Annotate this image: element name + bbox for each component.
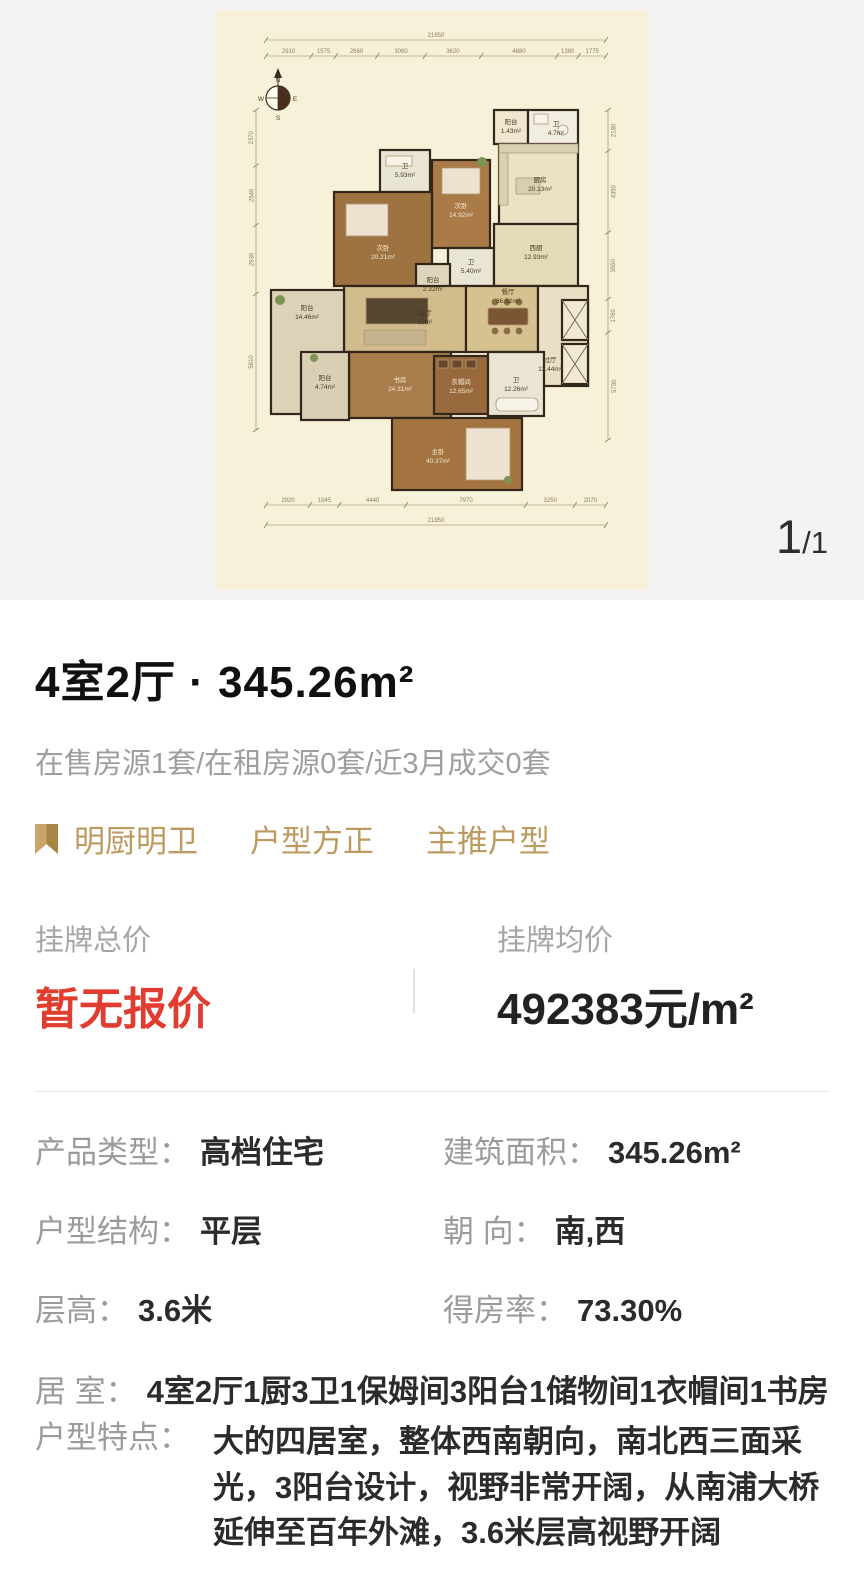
detail-row: 产品类型：高档住宅 建筑面积：345.26m² xyxy=(35,1134,829,1173)
dim-bottom-seg: 7970 xyxy=(459,498,473,504)
page-indicator-total: /1 xyxy=(802,525,828,560)
total-price-block: 挂牌总价 暂无报价 xyxy=(35,917,497,1037)
floorplan-drawing: 21850 2910 1575 2660 3060 3620 4880 1380… xyxy=(216,10,648,590)
detail-label: 层高： xyxy=(35,1293,128,1328)
room-area: 4.74m² xyxy=(315,384,336,391)
dim-top-total: 21850 xyxy=(428,33,445,39)
room-label: 客厅 xyxy=(419,308,433,317)
room-area: 24.31m² xyxy=(388,386,413,393)
room-label: 阳台 xyxy=(319,373,332,382)
avg-price-label: 挂牌均价 xyxy=(497,917,829,959)
dim-bottom-seg: 2070 xyxy=(584,498,598,504)
tag-square-layout: 户型方正 xyxy=(250,816,374,861)
dim-top-seg: 2910 xyxy=(282,49,296,55)
room-area: 1.43m² xyxy=(501,128,522,135)
price-section: 挂牌总价 暂无报价 挂牌均价 492383元/m² xyxy=(0,917,864,1037)
room-label: 主卧 xyxy=(432,447,446,456)
room-area: 40.37m² xyxy=(426,458,451,465)
detail-built-area: 建筑面积：345.26m² xyxy=(443,1134,829,1173)
detail-label: 建筑面积： xyxy=(443,1135,598,1170)
detail-value: 大的四居室，整体西南朝向，南北西三面采光，3阳台设计，视野非常开阔，从南浦大桥延… xyxy=(213,1419,829,1556)
dim-right-seg: 2180 xyxy=(612,123,618,137)
room-area: 2.32m² xyxy=(423,286,444,293)
room-label: 阳台 xyxy=(427,275,440,284)
tag-featured-layout: 主推户型 xyxy=(426,816,550,861)
compass-w: W xyxy=(258,96,265,103)
page-title: 4室2厅 · 345.26m² xyxy=(35,646,829,710)
room-area: 36.52m² xyxy=(496,298,521,305)
page-indicator: 1/1 xyxy=(776,513,828,560)
dim-bottom-seg: 4440 xyxy=(366,498,380,504)
dim-top-seg: 1575 xyxy=(317,49,331,55)
room-area: 55m² xyxy=(418,319,434,326)
room-label: 卫 xyxy=(402,162,409,170)
compass-e: E xyxy=(293,96,298,103)
dim-bottom-seg: 3250 xyxy=(544,498,558,504)
listing-stats: 在售房源1套/在租房源0套/近3月成交0套 xyxy=(35,740,829,782)
bookmark-icon xyxy=(35,824,58,854)
dim-top-seg: 2660 xyxy=(350,49,364,55)
price-divider xyxy=(413,969,415,1013)
detail-value: 73.30% xyxy=(577,1293,682,1328)
details-section: 产品类型：高档住宅 建筑面积：345.26m² 户型结构：平层 朝 向：南,西 … xyxy=(0,1092,864,1556)
total-price-value: 暂无报价 xyxy=(35,973,497,1037)
room-label: 书房 xyxy=(394,375,407,384)
room-label: 卫 xyxy=(553,120,560,128)
room-area: 20.21m² xyxy=(371,254,396,261)
detail-rooms: 居 室：4室2厅1厨3卫1保姆间3阳台1储物间1衣帽间1书房 xyxy=(35,1370,829,1415)
room-label: 卫 xyxy=(513,376,520,384)
avg-price-block: 挂牌均价 492383元/m² xyxy=(497,917,829,1037)
detail-value: 345.26m² xyxy=(608,1135,741,1170)
dim-left-seg: 2930 xyxy=(250,252,256,266)
page-indicator-current: 1 xyxy=(776,510,802,563)
room-label: 次卧 xyxy=(455,201,469,210)
dim-left-seg: 2540 xyxy=(250,188,256,202)
detail-label: 居 室： xyxy=(35,1374,137,1409)
detail-features: 户型特点：大的四居室，整体西南朝向，南北西三面采光，3阳台设计，视野非常开阔，从… xyxy=(35,1419,829,1556)
room-label: 西厨 xyxy=(530,244,544,252)
room-label: 阳台 xyxy=(505,117,518,126)
detail-row: 户型结构：平层 朝 向：南,西 xyxy=(35,1213,829,1252)
dim-bottom-total: 21850 xyxy=(428,518,445,524)
room-label: 过厅 xyxy=(544,355,558,364)
avg-price-value: 492383元/m² xyxy=(497,973,829,1037)
room-area: 12.65m² xyxy=(449,388,474,395)
detail-orientation: 朝 向：南,西 xyxy=(443,1213,829,1252)
detail-label: 户型结构： xyxy=(35,1214,190,1249)
room-area: 14.46m² xyxy=(295,314,320,321)
room-area: 14.92m² xyxy=(449,212,474,219)
room-label: 衣帽间 xyxy=(451,377,471,386)
dim-top-seg: 4880 xyxy=(512,49,526,55)
dim-bottom-seg: 2920 xyxy=(281,498,295,504)
summary-section: 4室2厅 · 345.26m² 在售房源1套/在租房源0套/近3月成交0套 明厨… xyxy=(0,600,864,861)
room-label: 餐厅 xyxy=(502,287,516,296)
detail-label: 户型特点： xyxy=(35,1419,203,1556)
room-area: 4.7m² xyxy=(548,130,565,137)
room-area: 13.44m² xyxy=(538,366,563,373)
room-area: 12.93m² xyxy=(524,254,549,261)
listing-page: 21850 2910 1575 2660 3060 3620 4880 1380… xyxy=(0,0,864,1569)
room-label: 卫 xyxy=(468,258,475,266)
room-area: 5.40m² xyxy=(461,268,482,275)
dim-left-seg: 5810 xyxy=(249,355,255,369)
dim-left-seg: 2370 xyxy=(249,130,255,144)
floorplan-image[interactable]: 21850 2910 1575 2660 3060 3620 4880 1380… xyxy=(216,10,648,590)
tag-bright-kitchen-bath: 明厨明卫 xyxy=(74,816,198,861)
room-area: 12.26m² xyxy=(504,386,529,393)
dim-top-seg: 3620 xyxy=(446,49,460,55)
dim-right-seg: 4350 xyxy=(611,184,617,198)
detail-row: 层高：3.6米 得房率：73.30% xyxy=(35,1292,829,1331)
dim-top-seg: 3060 xyxy=(394,49,408,55)
compass-n: N xyxy=(276,77,281,84)
detail-value: 南,西 xyxy=(555,1214,626,1249)
detail-value: 平层 xyxy=(200,1214,262,1249)
dim-right-seg: 5730 xyxy=(612,379,618,393)
total-price-label: 挂牌总价 xyxy=(35,917,497,959)
room-area: 20.13m² xyxy=(528,186,553,193)
detail-label: 得房率： xyxy=(443,1293,567,1328)
detail-structure: 户型结构：平层 xyxy=(35,1213,443,1252)
compass-s: S xyxy=(276,115,281,122)
tag-row: 明厨明卫 户型方正 主推户型 xyxy=(35,816,829,861)
detail-product-type: 产品类型：高档住宅 xyxy=(35,1134,443,1173)
dim-top-seg: 1775 xyxy=(586,49,600,55)
room-label: 阳台 xyxy=(301,303,314,312)
detail-value: 4室2厅1厨3卫1保姆间3阳台1储物间1衣帽间1书房 xyxy=(147,1374,829,1409)
dim-right-seg: 3550 xyxy=(611,258,617,272)
detail-efficiency: 得房率：73.30% xyxy=(443,1292,829,1331)
dim-top-seg: 1380 xyxy=(561,49,575,55)
detail-ceiling-height: 层高：3.6米 xyxy=(35,1292,443,1331)
detail-value: 高档住宅 xyxy=(200,1135,324,1170)
room-label: 厨房 xyxy=(534,175,547,184)
dim-bottom-seg: 1945 xyxy=(318,498,332,504)
detail-value: 3.6米 xyxy=(138,1293,212,1328)
room-label: 次卧 xyxy=(377,243,391,252)
detail-label: 朝 向： xyxy=(443,1214,545,1249)
detail-label: 产品类型： xyxy=(35,1135,190,1170)
dim-right-seg: 1780 xyxy=(611,308,617,322)
room-area: 5.93m² xyxy=(395,172,416,179)
floorplan-section: 21850 2910 1575 2660 3060 3620 4880 1380… xyxy=(0,0,864,600)
